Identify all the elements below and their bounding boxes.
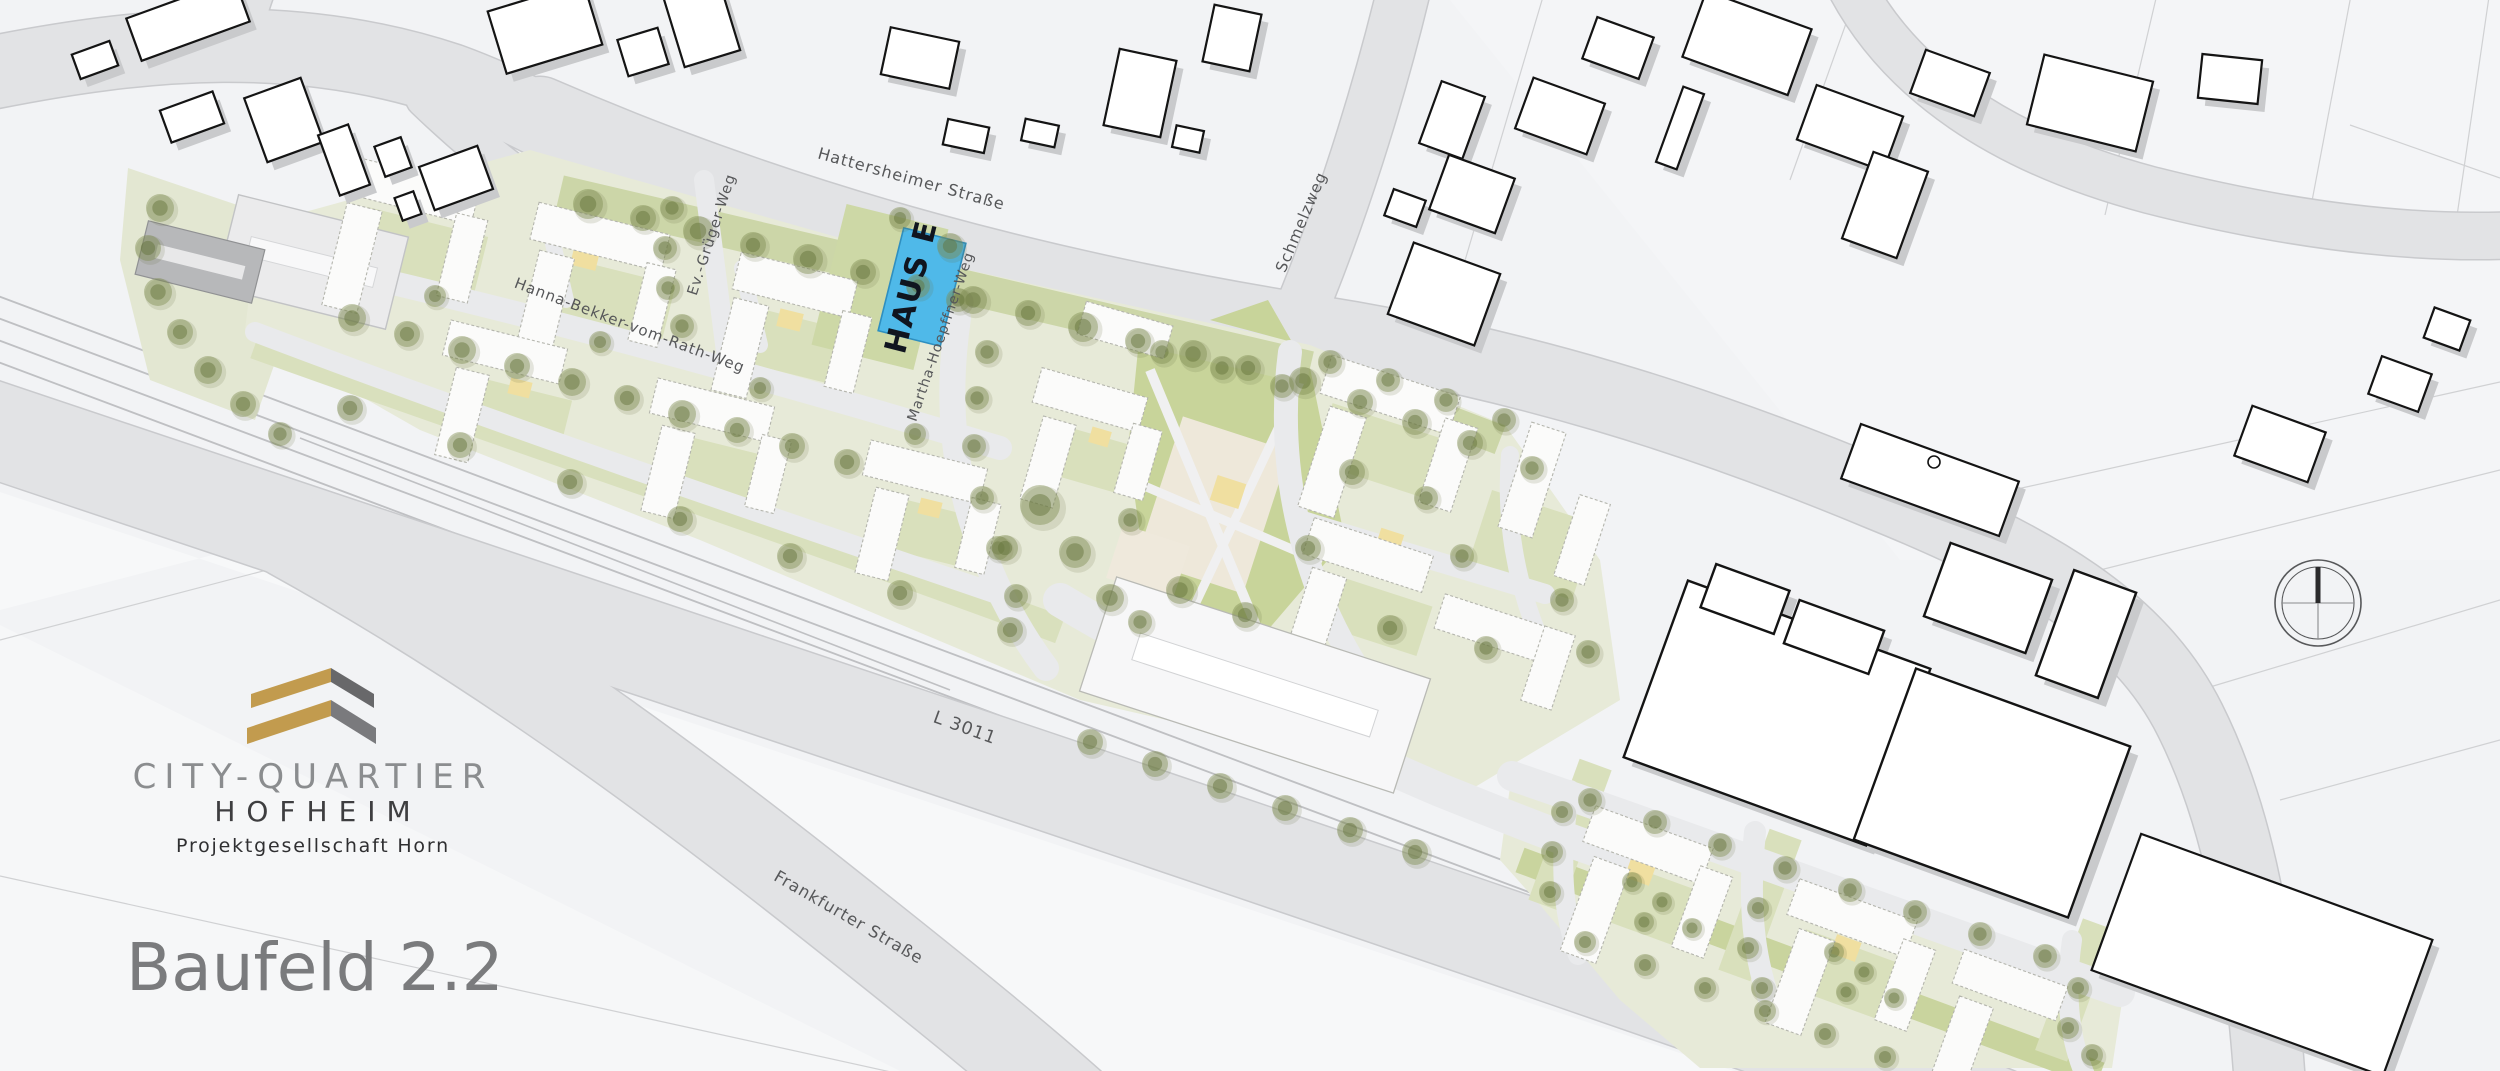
existing-building: [2198, 54, 2262, 104]
parcel-line: [2200, 600, 2500, 690]
logo-line2: HOFHEIM: [214, 795, 421, 828]
site-plan-page: Hattersheimer Straße Schmelzweg Hanna-Be…: [0, 0, 2500, 1071]
north-compass-icon: [2275, 560, 2361, 646]
parcel-line: [2280, 740, 2500, 800]
road: [1292, 0, 1405, 332]
page-title: Baufeld 2.2: [126, 929, 504, 1006]
site-plan-map: Hattersheimer Straße Schmelzweg Hanna-Be…: [0, 0, 2500, 1071]
existing-building: [1021, 119, 1059, 148]
building-detail-circle: [1928, 456, 1940, 468]
existing-building: [318, 124, 370, 195]
logo-building-icon: [247, 668, 376, 744]
tree-icon: [337, 395, 367, 425]
logo-line1: CITY-QUARTIER: [133, 757, 494, 797]
existing-building: [1172, 125, 1204, 152]
existing-building: [488, 0, 603, 74]
tree-icon: [268, 422, 296, 450]
existing-building: [1202, 5, 1261, 72]
existing-building: [943, 119, 989, 153]
logo-line3: Projektgesellschaft Horn: [176, 835, 450, 857]
